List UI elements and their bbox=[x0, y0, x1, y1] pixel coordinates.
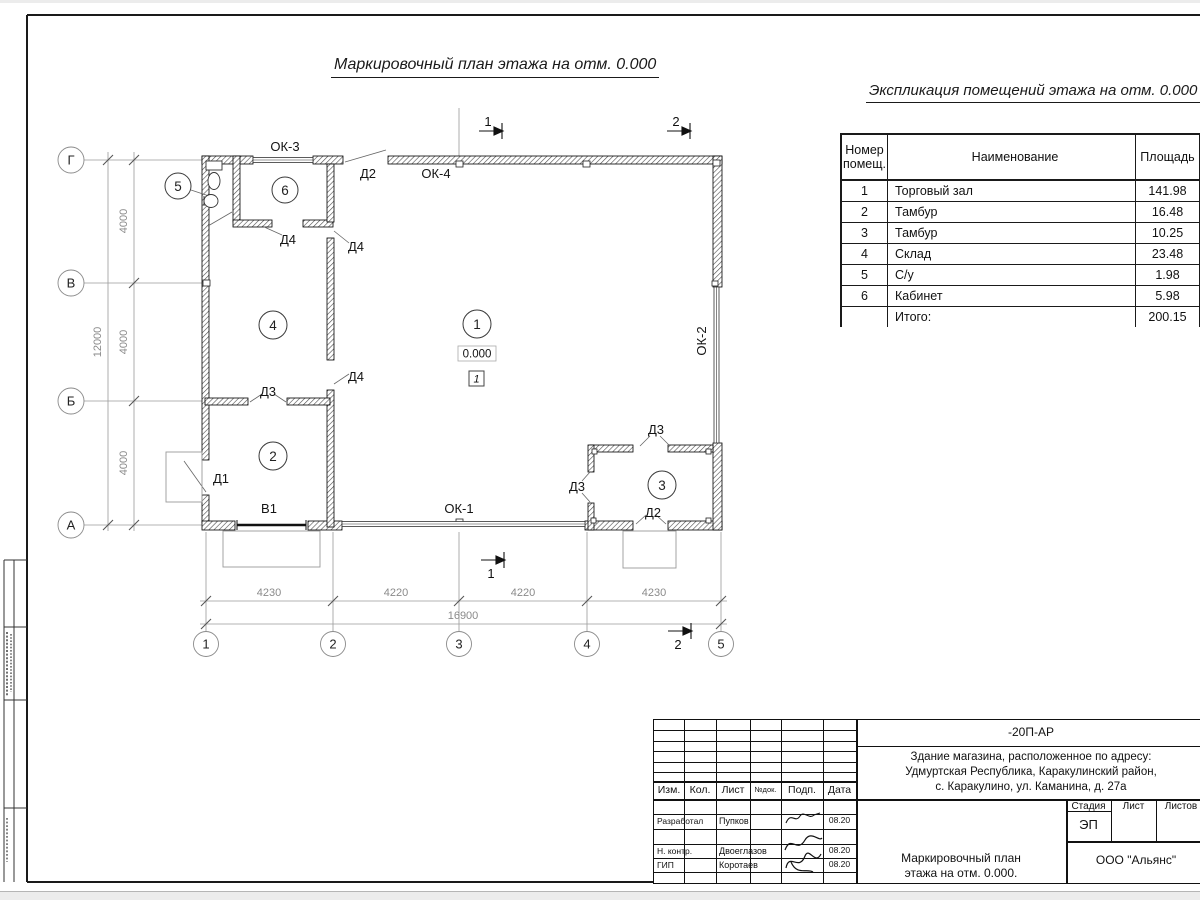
tb-line bbox=[654, 814, 856, 815]
axis-number-3: 3 bbox=[455, 637, 462, 652]
label-d4-a: Д4 bbox=[280, 232, 296, 247]
table-row: 5 С/у 1.98 bbox=[841, 265, 1200, 286]
axis-number-1: 1 bbox=[202, 637, 209, 652]
tb-col-ndok: №док. bbox=[750, 786, 781, 795]
room-area-cell: 141.98 bbox=[1136, 180, 1200, 202]
tb-name-developed: Пупков bbox=[719, 816, 779, 826]
dim-12000: 12000 bbox=[92, 327, 104, 358]
tb-date-ncontr: 08.20 bbox=[823, 846, 856, 856]
tb-line bbox=[1066, 841, 1200, 843]
label-d3-r3-left: Д3 bbox=[569, 479, 585, 494]
tb-role-gip: ГИП bbox=[657, 861, 715, 871]
tb-line bbox=[654, 772, 856, 773]
left-margin-stamps bbox=[4, 560, 27, 882]
tb-col-izm: Изм. bbox=[654, 784, 684, 796]
section-2-top: 2 bbox=[672, 114, 679, 129]
dim-4220-a: 4220 bbox=[384, 587, 408, 599]
gate-v1 bbox=[237, 520, 306, 530]
tb-line bbox=[654, 730, 856, 731]
sink-fixture bbox=[204, 195, 218, 208]
dim-16900: 16900 bbox=[448, 610, 479, 622]
door-leaders bbox=[184, 150, 670, 524]
table-total-row: Итого: 200.15 bbox=[841, 307, 1200, 328]
porches bbox=[166, 452, 676, 568]
label-ok1: ОК-1 bbox=[444, 501, 473, 516]
tb-drawing-name: Маркировочный план этажа на отм. 0.000. bbox=[856, 851, 1066, 881]
table-row: 4 Склад 23.48 bbox=[841, 244, 1200, 265]
tb-date-developed: 08.20 bbox=[823, 816, 856, 826]
room-num-cell: 1 bbox=[841, 180, 888, 202]
section-1-bottom: 1 bbox=[487, 566, 494, 581]
col-header-number-line2: помещ. bbox=[842, 157, 887, 171]
tb-line bbox=[654, 762, 856, 763]
table-row: 6 Кабинет 5.98 bbox=[841, 286, 1200, 307]
total-label-cell: Итого: bbox=[888, 307, 1136, 328]
level-mark-value: 0.000 bbox=[463, 349, 492, 361]
room-name-cell: Тамбур bbox=[888, 202, 1136, 223]
windows bbox=[253, 158, 719, 527]
section-2-bottom: 2 bbox=[674, 637, 681, 652]
level-mark: 0.000 bbox=[458, 346, 496, 361]
explication-title: Экспликация помещений этажа на отм. 0.00… bbox=[866, 82, 1200, 103]
tb-date-gip: 08.20 bbox=[823, 860, 856, 870]
drawing-sheet-page: { "page": { "plan_title": "Маркировочный… bbox=[0, 0, 1200, 900]
col-header-name: Наименование bbox=[888, 134, 1136, 180]
room-name-cell: Кабинет bbox=[888, 286, 1136, 307]
tb-col-data: Дата bbox=[823, 784, 856, 796]
axis-letter-a: А bbox=[67, 518, 76, 533]
label-d2-top: Д2 bbox=[360, 166, 376, 181]
dimension-ticks bbox=[103, 155, 726, 629]
tb-role-ncontr: Н. контр. bbox=[657, 847, 715, 857]
label-ok3: ОК-3 bbox=[270, 139, 299, 154]
tb-company: ООО "Альянс" bbox=[1066, 854, 1200, 868]
floor-type-value: 1 bbox=[473, 374, 479, 386]
axis-marker-labels: Г В Б А 1 2 3 4 5 bbox=[67, 153, 725, 652]
section-mark-labels: 1 2 1 2 bbox=[484, 114, 681, 652]
room-number-4: 4 bbox=[269, 318, 277, 333]
room-num-cell: 2 bbox=[841, 202, 888, 223]
tb-drawing-name-line2: этажа на отм. 0.000. bbox=[856, 866, 1066, 881]
tb-line bbox=[654, 799, 856, 801]
tb-stage-value: ЭП bbox=[1066, 818, 1111, 833]
room-number-5: 5 bbox=[174, 179, 182, 194]
tb-col-list: Лист bbox=[716, 784, 750, 796]
explication-header-row: Номер помещ. Наименование Площадь Ка по bbox=[841, 134, 1200, 180]
label-d1: Д1 bbox=[213, 471, 229, 486]
axis-letter-b: Б bbox=[67, 394, 76, 409]
room-name-cell: Тамбур bbox=[888, 223, 1136, 244]
axis-markers bbox=[58, 147, 734, 657]
axis-number-4: 4 bbox=[583, 637, 590, 652]
section-marks bbox=[479, 123, 692, 639]
room-area-cell: 5.98 bbox=[1136, 286, 1200, 307]
axis-number-2: 2 bbox=[329, 637, 336, 652]
axis-number-5: 5 bbox=[717, 637, 724, 652]
plan-title: Маркировочный план этажа на отм. 0.000 bbox=[331, 56, 659, 78]
tb-list-label: Лист bbox=[1111, 801, 1156, 813]
total-area-cell: 200.15 bbox=[1136, 307, 1200, 328]
floor-type-mark: 1 bbox=[469, 371, 484, 386]
room-area-cell: 10.25 bbox=[1136, 223, 1200, 244]
dim-4230-a: 4230 bbox=[257, 587, 281, 599]
signature-developed bbox=[783, 808, 823, 828]
tb-stage-label: Стадия bbox=[1066, 801, 1111, 813]
label-ok2: ОК-2 bbox=[694, 326, 709, 355]
room-num-cell: 6 bbox=[841, 286, 888, 307]
room-num-cell: 4 bbox=[841, 244, 888, 265]
tb-col-podp: Подп. bbox=[781, 784, 823, 796]
label-d2-r3: Д2 bbox=[645, 505, 661, 520]
tb-line bbox=[654, 781, 856, 783]
room-num-cell: 5 bbox=[841, 265, 888, 286]
room-name-cell: Склад bbox=[888, 244, 1136, 265]
tb-line bbox=[654, 858, 856, 859]
label-d3-r3-top: Д3 bbox=[648, 422, 664, 437]
table-row: 2 Тамбур 16.48 bbox=[841, 202, 1200, 223]
room-number-6: 6 bbox=[281, 183, 289, 198]
tb-line bbox=[654, 741, 856, 742]
walls bbox=[202, 156, 722, 530]
tb-line bbox=[654, 844, 856, 845]
col-header-number: Номер помещ. bbox=[841, 134, 888, 180]
tb-listov-label: Листов bbox=[1156, 801, 1200, 813]
tb-drawing-name-line1: Маркировочный план bbox=[856, 851, 1066, 866]
label-ok4: ОК-4 bbox=[421, 166, 450, 181]
wall-axis-squares bbox=[203, 160, 720, 525]
tb-line bbox=[856, 746, 1200, 747]
tb-address-line3: с. Каракулино, ул. Каманина, д. 27а bbox=[856, 780, 1200, 795]
dim-4000-a: 4000 bbox=[118, 209, 130, 233]
signature-ncontr-gip bbox=[781, 832, 825, 876]
tb-doc-code: -20П-АР bbox=[856, 726, 1200, 740]
room-area-cell: 23.48 bbox=[1136, 244, 1200, 265]
tb-line bbox=[654, 751, 856, 752]
label-d4-c: Д4 bbox=[348, 369, 364, 384]
explication-table: Номер помещ. Наименование Площадь Ка по … bbox=[840, 133, 1200, 327]
tb-col-kol: Кол. bbox=[684, 784, 716, 796]
axis-letter-g: Г bbox=[67, 153, 74, 168]
explication-table-wrap: Номер помещ. Наименование Площадь Ка по … bbox=[840, 133, 1200, 327]
table-row: 1 Торговый зал 141.98 bbox=[841, 180, 1200, 202]
tb-line bbox=[654, 829, 856, 830]
tb-address-line1: Здание магазина, расположенное по адресу… bbox=[856, 750, 1200, 765]
dim-4000-c: 4000 bbox=[118, 451, 130, 475]
tb-line bbox=[654, 872, 856, 873]
dim-4000-b: 4000 bbox=[118, 330, 130, 354]
tb-name-gip: Коротаев bbox=[719, 860, 781, 870]
dim-4230-b: 4230 bbox=[642, 587, 666, 599]
tb-name-ncontr: Двоеглазов bbox=[719, 846, 781, 856]
axis-letter-v: В bbox=[67, 276, 76, 291]
room-number-3: 3 bbox=[658, 478, 666, 493]
label-d4-b: Д4 bbox=[348, 239, 364, 254]
col-header-number-line1: Номер bbox=[842, 143, 887, 157]
room-number-2: 2 bbox=[269, 449, 277, 464]
label-d3-r2: Д3 bbox=[260, 384, 276, 399]
tb-address: Здание магазина, расположенное по адресу… bbox=[856, 750, 1200, 795]
room-area-cell: 1.98 bbox=[1136, 265, 1200, 286]
room-number-1: 1 bbox=[473, 317, 481, 332]
table-row: 3 Тамбур 10.25 bbox=[841, 223, 1200, 244]
room-area-cell: 16.48 bbox=[1136, 202, 1200, 223]
room-name-cell: Торговый зал bbox=[888, 180, 1136, 202]
section-1-top: 1 bbox=[484, 114, 491, 129]
dimension-labels: 4230 4220 4220 4230 16900 4000 4000 4000… bbox=[92, 209, 666, 622]
room-name-cell: С/у bbox=[888, 265, 1136, 286]
total-num-cell bbox=[841, 307, 888, 328]
label-v1: В1 bbox=[261, 501, 277, 516]
col-header-area: Площадь bbox=[1136, 134, 1200, 180]
tb-role-developed: Разработал bbox=[657, 817, 715, 827]
room-num-cell: 3 bbox=[841, 223, 888, 244]
title-block: Изм. Кол. Лист №док. Подп. Дата Разработ… bbox=[653, 719, 1200, 884]
dim-4220-b: 4220 bbox=[511, 587, 535, 599]
tb-address-line2: Удмуртская Республика, Каракулинский рай… bbox=[856, 765, 1200, 780]
